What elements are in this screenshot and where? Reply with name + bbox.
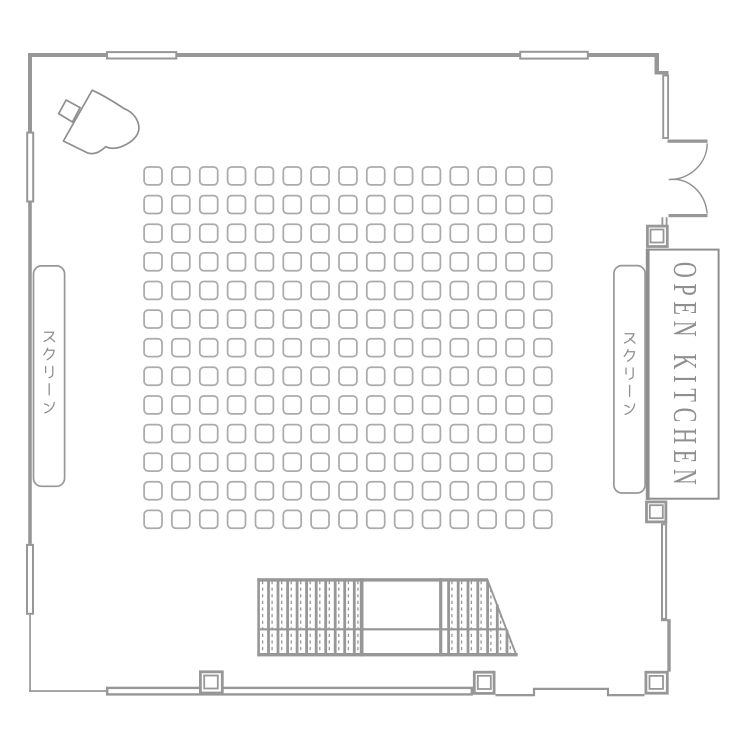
svg-text:OPEN KITCHEN: OPEN KITCHEN (666, 262, 703, 491)
